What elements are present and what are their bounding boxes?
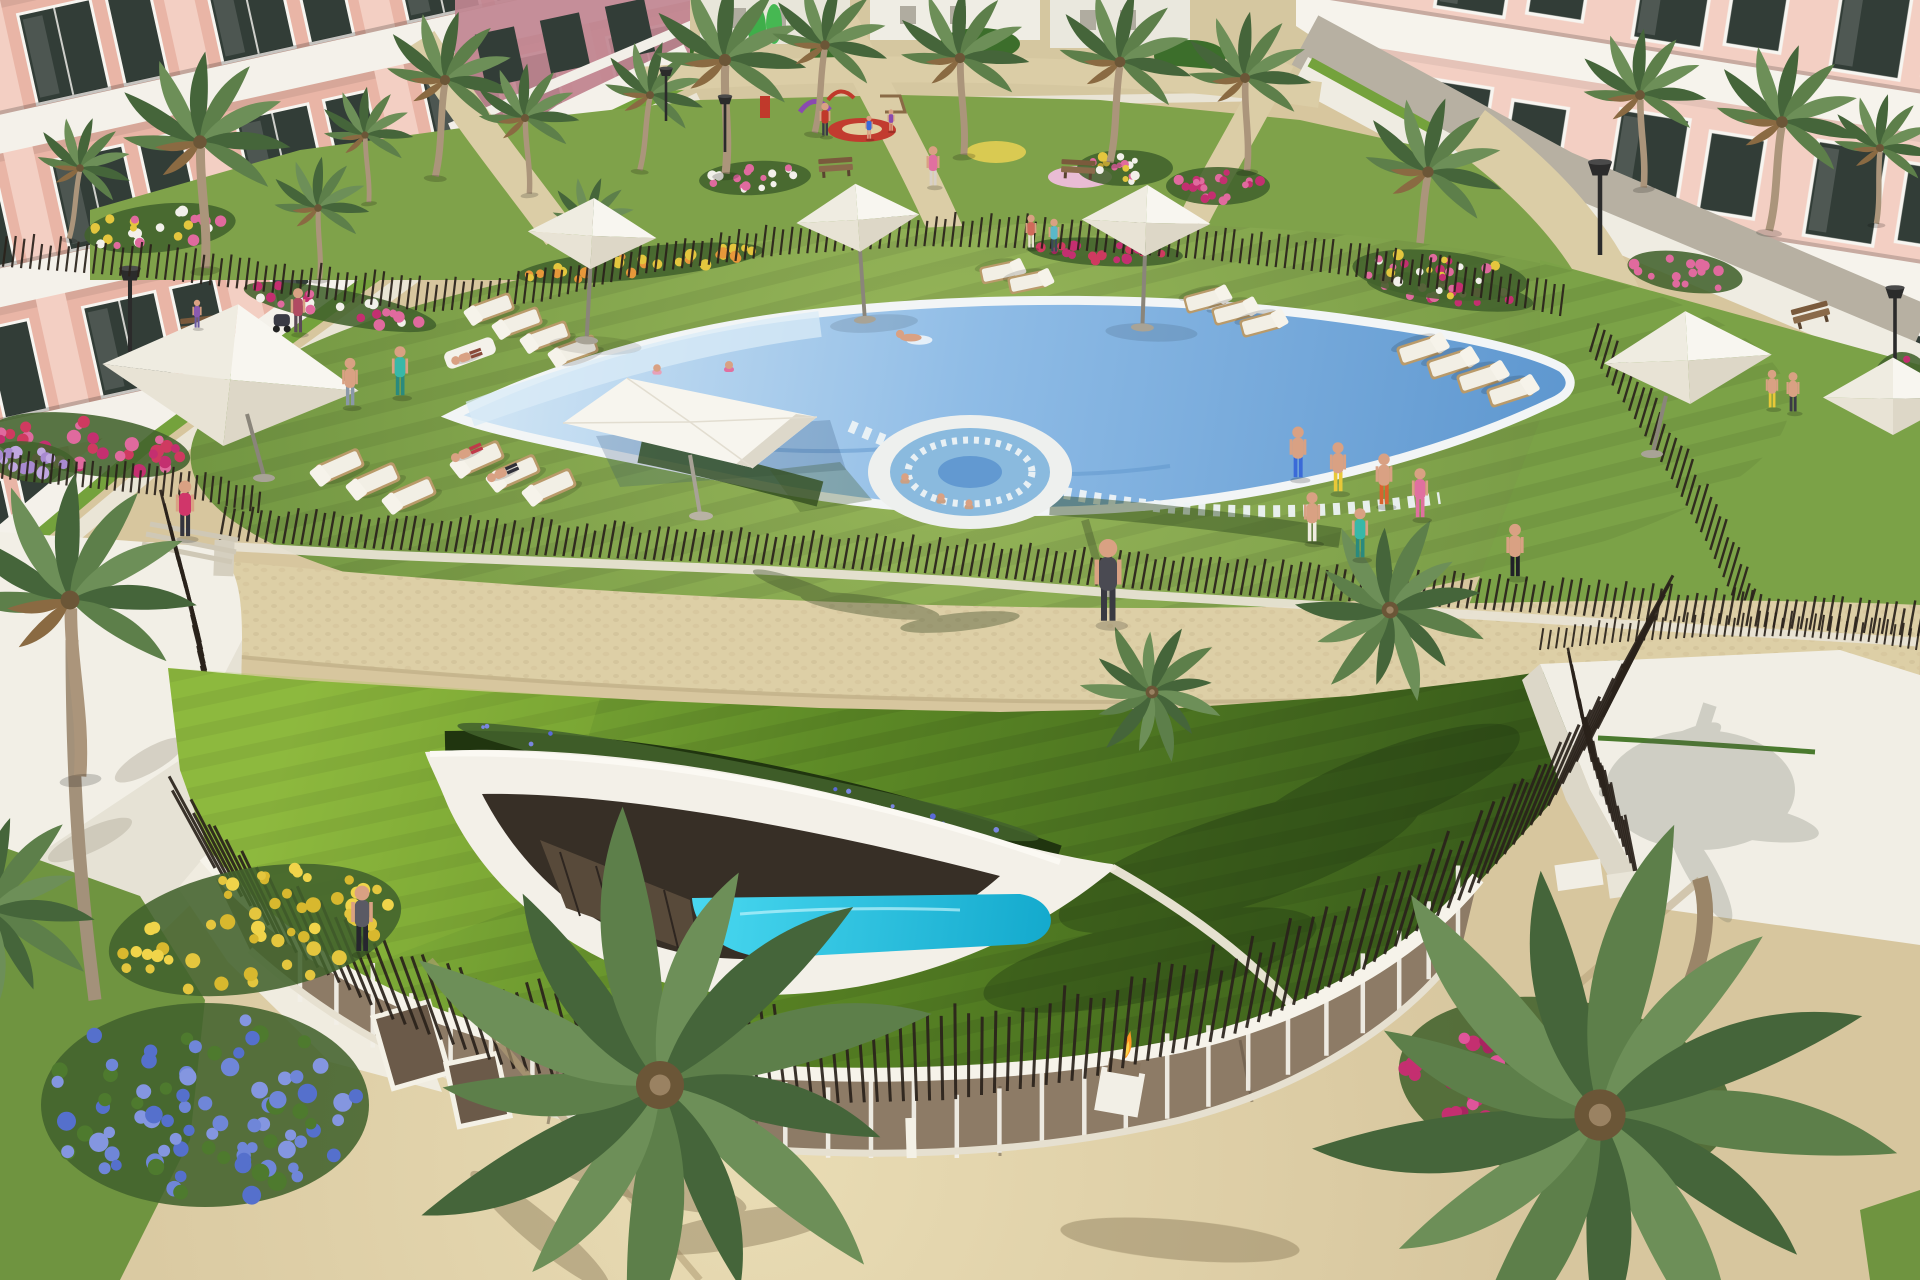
person-legs bbox=[1790, 396, 1793, 412]
person-legs bbox=[180, 514, 184, 536]
flower-dot bbox=[145, 1106, 163, 1124]
flower-dot bbox=[1182, 183, 1190, 191]
person-legs bbox=[396, 376, 400, 396]
person-legs bbox=[1299, 457, 1303, 477]
flower-dot bbox=[252, 1164, 270, 1182]
flower-dot bbox=[1242, 182, 1249, 189]
person-head bbox=[1050, 219, 1057, 226]
person-legs bbox=[1334, 472, 1338, 492]
person-shadow bbox=[927, 185, 943, 190]
person-torso bbox=[821, 110, 828, 124]
person-torso bbox=[1355, 519, 1366, 539]
flower-dot bbox=[136, 1084, 151, 1099]
person-torso bbox=[1050, 226, 1057, 240]
person-torso bbox=[1307, 503, 1318, 523]
parasol-base bbox=[253, 474, 275, 482]
flower-dot bbox=[295, 1135, 308, 1148]
flower-dot bbox=[189, 1040, 202, 1053]
render-stage bbox=[0, 0, 1920, 1280]
person-legs bbox=[1051, 239, 1053, 252]
person-arm bbox=[1390, 466, 1393, 482]
person-arm bbox=[1304, 505, 1307, 520]
flower-dot bbox=[207, 1046, 222, 1061]
flower-dot bbox=[245, 1031, 259, 1045]
person-torso bbox=[345, 368, 355, 388]
person-legs bbox=[1385, 484, 1389, 504]
person-legs bbox=[1380, 484, 1384, 504]
person-arm bbox=[1049, 227, 1051, 237]
person-head bbox=[965, 499, 972, 506]
playground-disc-center bbox=[842, 123, 882, 135]
fence-post bbox=[994, 1011, 996, 1093]
person-legs bbox=[1055, 239, 1057, 252]
person-arm bbox=[351, 902, 355, 922]
parasol-base bbox=[1641, 450, 1663, 458]
person-legs bbox=[1356, 538, 1360, 558]
person-arm bbox=[1521, 537, 1524, 553]
person-legs bbox=[1416, 498, 1420, 518]
person-arm bbox=[192, 307, 194, 316]
door-handle bbox=[905, 1118, 916, 1158]
stroller-wheel bbox=[284, 325, 291, 332]
flower-dot bbox=[290, 1070, 303, 1083]
person-shadow bbox=[177, 536, 199, 543]
person-head bbox=[1332, 442, 1343, 453]
flower-dot bbox=[1903, 356, 1910, 363]
person-arm bbox=[355, 370, 358, 385]
person-arm bbox=[303, 299, 305, 313]
person-legs bbox=[346, 386, 349, 405]
person-legs bbox=[822, 123, 824, 136]
person-torso bbox=[1378, 465, 1389, 486]
person-arm bbox=[872, 122, 873, 129]
person-head bbox=[653, 364, 661, 372]
person-shadow bbox=[1026, 248, 1039, 252]
person-arm bbox=[1425, 481, 1428, 496]
flower-dot bbox=[144, 1045, 157, 1058]
person-shadow bbox=[352, 951, 378, 959]
person-head bbox=[821, 103, 828, 110]
person-torso bbox=[1415, 479, 1426, 499]
flower-dot bbox=[87, 1028, 102, 1043]
person-legs bbox=[1794, 396, 1797, 412]
fence-post bbox=[1007, 1017, 1009, 1091]
person-legs bbox=[195, 317, 197, 328]
person-torso bbox=[194, 306, 200, 317]
flower-dot bbox=[237, 1142, 248, 1153]
person-torso bbox=[1509, 535, 1521, 557]
flowerbed bbox=[41, 1003, 369, 1207]
person-head bbox=[1414, 468, 1425, 479]
flower-dot bbox=[278, 1141, 296, 1159]
person-torso bbox=[866, 121, 871, 130]
person-torso bbox=[929, 155, 938, 171]
flower-dot bbox=[237, 1153, 251, 1167]
person-arm bbox=[405, 359, 408, 374]
flower-dot bbox=[1132, 158, 1138, 164]
person-legs bbox=[1032, 235, 1034, 248]
person-torso bbox=[1333, 453, 1344, 473]
person-torso bbox=[179, 493, 191, 516]
flower-dot bbox=[1219, 196, 1228, 205]
person-torso bbox=[889, 114, 894, 123]
person-arm bbox=[191, 495, 194, 512]
flower-dot bbox=[327, 1149, 341, 1163]
person-legs bbox=[1313, 522, 1317, 542]
person-arm bbox=[1776, 379, 1778, 391]
person-torso bbox=[1768, 378, 1776, 394]
person-arm bbox=[865, 122, 866, 129]
person-head bbox=[179, 481, 192, 494]
person-head bbox=[901, 473, 909, 481]
stroller bbox=[274, 314, 290, 326]
flower-dot bbox=[198, 1096, 212, 1110]
flower-dot bbox=[251, 1082, 268, 1099]
person-shadow bbox=[1766, 407, 1781, 412]
flower-dot bbox=[269, 1091, 286, 1108]
person-head bbox=[1789, 372, 1798, 381]
person-legs bbox=[1028, 235, 1030, 248]
person-legs bbox=[1101, 588, 1107, 621]
person-legs bbox=[1769, 392, 1772, 407]
person-arm bbox=[1412, 481, 1415, 496]
flower-dot bbox=[148, 1159, 164, 1175]
person-arm bbox=[1290, 439, 1293, 455]
person-arm bbox=[1317, 505, 1320, 520]
flower-dot bbox=[242, 1186, 261, 1205]
person-head bbox=[345, 358, 356, 369]
person-arm bbox=[200, 307, 202, 316]
fence-post bbox=[941, 1016, 943, 1100]
person-shadow bbox=[1787, 411, 1803, 416]
person-arm bbox=[937, 156, 939, 168]
person-arm bbox=[927, 156, 929, 168]
person-arm bbox=[176, 495, 179, 512]
person-shadow bbox=[1507, 576, 1528, 582]
flower-dot bbox=[298, 1084, 317, 1103]
person-legs bbox=[1511, 555, 1515, 576]
person-legs bbox=[1773, 392, 1776, 407]
person-shadow bbox=[1096, 621, 1129, 631]
person-shadow bbox=[888, 131, 896, 134]
flower-dot bbox=[221, 1058, 239, 1076]
person-arm bbox=[1343, 455, 1346, 470]
flower-dot bbox=[170, 1133, 182, 1145]
flower-dot bbox=[161, 1115, 174, 1128]
person-legs bbox=[869, 130, 871, 139]
flower-dot bbox=[179, 1101, 191, 1113]
person-head bbox=[194, 300, 200, 306]
person-legs bbox=[299, 315, 302, 333]
flower-dot bbox=[247, 1142, 258, 1153]
playground-post bbox=[760, 96, 770, 118]
person-legs bbox=[186, 514, 190, 536]
flower-dot bbox=[61, 1145, 74, 1158]
flower-dot bbox=[111, 1160, 122, 1171]
flower-dot bbox=[292, 1103, 308, 1119]
person-torso bbox=[1027, 222, 1034, 236]
jacuzzi bbox=[868, 415, 1072, 529]
flower-dot bbox=[105, 1146, 120, 1161]
flower-dot bbox=[1130, 171, 1139, 180]
person-arm bbox=[829, 111, 831, 121]
person-legs bbox=[356, 925, 361, 951]
person-arm bbox=[1787, 382, 1789, 394]
person-arm bbox=[1365, 521, 1368, 536]
person-legs bbox=[363, 925, 368, 951]
person-legs bbox=[294, 315, 297, 333]
person-arm bbox=[1095, 560, 1100, 585]
person-arm bbox=[1304, 439, 1307, 455]
person-legs bbox=[867, 130, 869, 139]
flower-dot bbox=[57, 1112, 76, 1131]
person-arm bbox=[893, 115, 894, 122]
person-arm bbox=[887, 115, 888, 122]
person-legs bbox=[1294, 457, 1298, 477]
person-torso bbox=[1292, 438, 1303, 459]
flower-dot bbox=[233, 1047, 244, 1058]
person-head bbox=[355, 886, 370, 901]
yellow-ground-circle bbox=[966, 141, 1026, 163]
sail-pole-base bbox=[689, 512, 713, 521]
person-legs bbox=[1308, 522, 1312, 542]
flower-dot bbox=[183, 1125, 194, 1136]
person-head bbox=[293, 288, 303, 298]
person-torso bbox=[293, 298, 303, 316]
person-arm bbox=[342, 370, 345, 385]
person-head bbox=[725, 361, 733, 369]
person-head bbox=[394, 346, 405, 357]
person-arm bbox=[1376, 466, 1379, 482]
person-head bbox=[1099, 539, 1118, 558]
person-head bbox=[1378, 454, 1389, 465]
resort-aerial-render bbox=[0, 0, 1920, 1280]
person-shadow bbox=[1376, 504, 1396, 510]
flower-dot bbox=[176, 1089, 189, 1102]
person-legs bbox=[1339, 472, 1343, 492]
flower-dot bbox=[240, 1014, 252, 1026]
person-torso bbox=[395, 357, 406, 377]
flower-dot bbox=[104, 1127, 115, 1138]
person-arm bbox=[369, 902, 373, 922]
person-shadow bbox=[1049, 252, 1062, 256]
stroller-wheel bbox=[273, 325, 280, 332]
person-legs bbox=[198, 317, 200, 328]
flower-dot bbox=[160, 1082, 172, 1094]
person-legs bbox=[401, 376, 405, 396]
person-arm bbox=[291, 299, 293, 313]
person-head bbox=[937, 493, 945, 501]
flower-dot bbox=[106, 1059, 118, 1071]
person-legs bbox=[351, 386, 354, 405]
flower-dot bbox=[1220, 176, 1228, 184]
person-legs bbox=[934, 170, 937, 186]
person-shadow bbox=[343, 405, 362, 411]
flower-dot bbox=[202, 1141, 216, 1155]
flower-dot bbox=[285, 1130, 296, 1141]
person-torso bbox=[1099, 557, 1117, 591]
flower-dot bbox=[175, 1171, 187, 1183]
flower-dot bbox=[298, 1035, 311, 1048]
person-head bbox=[1354, 508, 1365, 519]
flower-dot bbox=[1208, 191, 1216, 199]
flower-dot bbox=[247, 1119, 261, 1133]
person-shadow bbox=[1305, 541, 1325, 547]
flower-dot bbox=[52, 1076, 64, 1088]
flower-dot bbox=[98, 1093, 111, 1106]
person-arm bbox=[1506, 537, 1509, 553]
fence-post bbox=[982, 1017, 983, 1095]
person-arm bbox=[1766, 379, 1768, 391]
flower-dot bbox=[1123, 176, 1129, 182]
person-shadow bbox=[1353, 557, 1373, 563]
person-shadow bbox=[820, 136, 833, 140]
flower-dot bbox=[1122, 165, 1129, 172]
flower-dot bbox=[213, 1115, 229, 1131]
person-torso bbox=[1789, 381, 1798, 397]
flower-dot bbox=[292, 1171, 304, 1183]
flower-dot bbox=[131, 1097, 143, 1109]
person-legs bbox=[1361, 538, 1365, 558]
fence-post bbox=[955, 1003, 956, 1099]
flower-dot bbox=[313, 1058, 329, 1074]
flower-dot bbox=[305, 1118, 316, 1129]
flower-dot bbox=[349, 1089, 363, 1103]
person-head bbox=[1768, 370, 1777, 379]
person-shadow bbox=[291, 332, 309, 337]
person-head bbox=[866, 116, 871, 121]
person-arm bbox=[1026, 223, 1028, 233]
person-shadow bbox=[866, 139, 875, 142]
flower-dot bbox=[278, 1072, 292, 1086]
person-arm bbox=[1117, 560, 1122, 585]
flower-dot bbox=[217, 1151, 230, 1164]
person-head bbox=[1292, 427, 1303, 438]
flower-dot bbox=[1223, 169, 1229, 175]
person-torso bbox=[355, 900, 369, 927]
flower-dot bbox=[1174, 175, 1184, 185]
person-arm bbox=[1330, 455, 1333, 470]
flower-dot bbox=[332, 1114, 344, 1126]
person-shadow bbox=[193, 328, 204, 331]
person-arm bbox=[1035, 223, 1037, 233]
person-legs bbox=[930, 170, 933, 186]
flower-dot bbox=[158, 1145, 170, 1157]
person-head bbox=[896, 330, 904, 338]
person-head bbox=[929, 146, 938, 155]
person-arm bbox=[392, 359, 395, 374]
person-shadow bbox=[1290, 477, 1310, 483]
person-head bbox=[1509, 524, 1521, 536]
flower-dot bbox=[1117, 153, 1124, 160]
person-shadow bbox=[1413, 517, 1433, 523]
person-legs bbox=[1421, 498, 1425, 518]
person-legs bbox=[1110, 588, 1116, 621]
person-legs bbox=[889, 122, 891, 130]
person-head bbox=[1306, 492, 1317, 503]
person-legs bbox=[1516, 555, 1520, 576]
flower-dot bbox=[1200, 184, 1207, 191]
person-shadow bbox=[1331, 491, 1351, 497]
person-head bbox=[889, 109, 894, 114]
person-arm bbox=[1352, 521, 1355, 536]
person-arm bbox=[1797, 382, 1799, 394]
flower-dot bbox=[1255, 176, 1265, 186]
flower-dot bbox=[173, 1185, 188, 1200]
jacuzzi-center bbox=[938, 456, 1002, 488]
flower-dot bbox=[1193, 179, 1200, 186]
person-legs bbox=[826, 123, 828, 136]
person-shadow bbox=[393, 395, 413, 401]
person-arm bbox=[1058, 227, 1060, 237]
flower-dot bbox=[264, 1134, 278, 1148]
flower-dot bbox=[99, 1162, 111, 1174]
person-arm bbox=[820, 111, 822, 121]
flower-dot bbox=[179, 1068, 196, 1085]
person-head bbox=[1027, 215, 1034, 222]
person-legs bbox=[891, 122, 893, 130]
